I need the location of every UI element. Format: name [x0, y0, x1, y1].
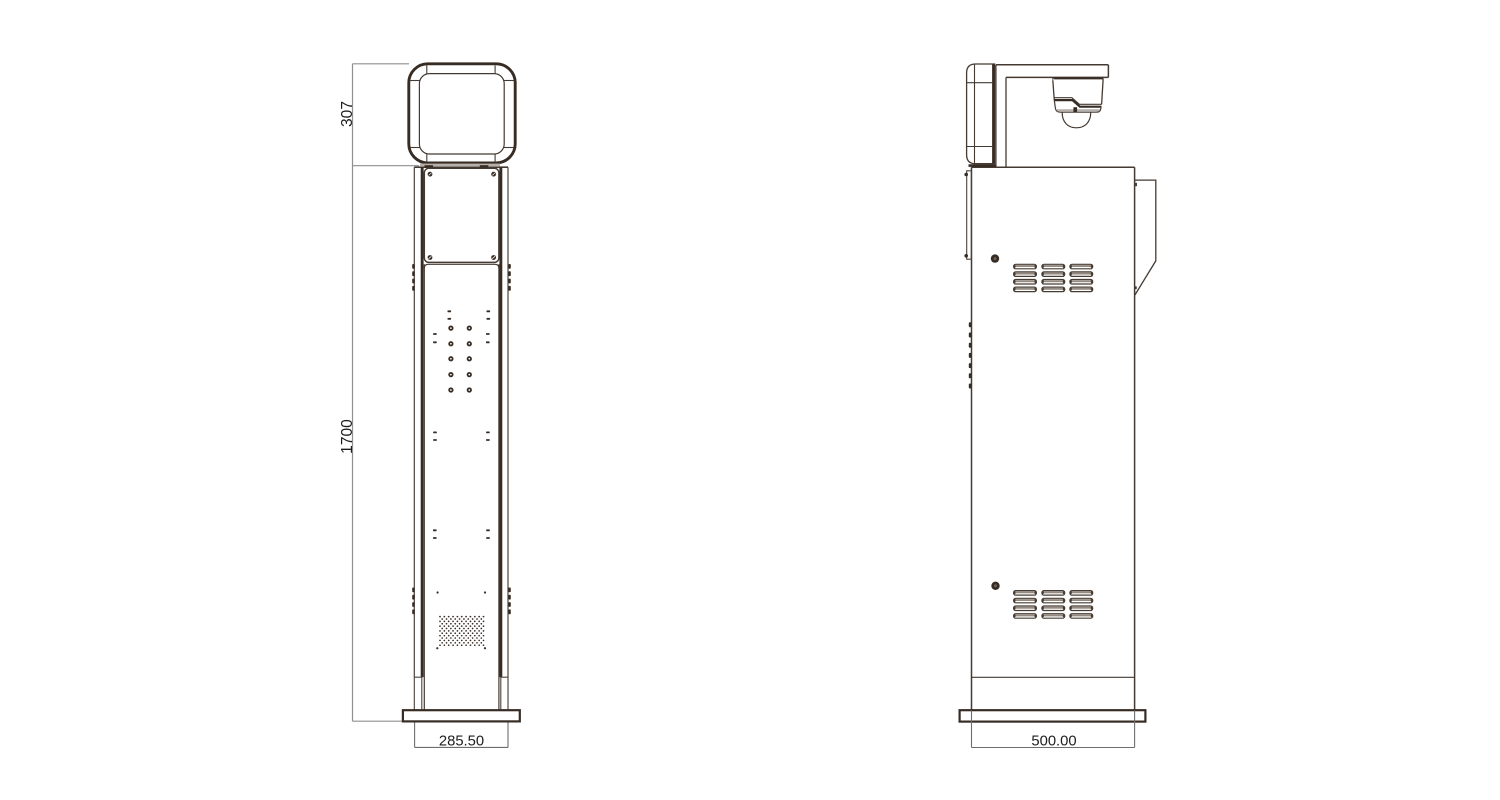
svg-text:285.50: 285.50	[439, 734, 484, 750]
svg-text:1700: 1700	[339, 419, 356, 454]
svg-text:307: 307	[339, 101, 356, 127]
svg-text:500.00: 500.00	[1031, 734, 1076, 750]
